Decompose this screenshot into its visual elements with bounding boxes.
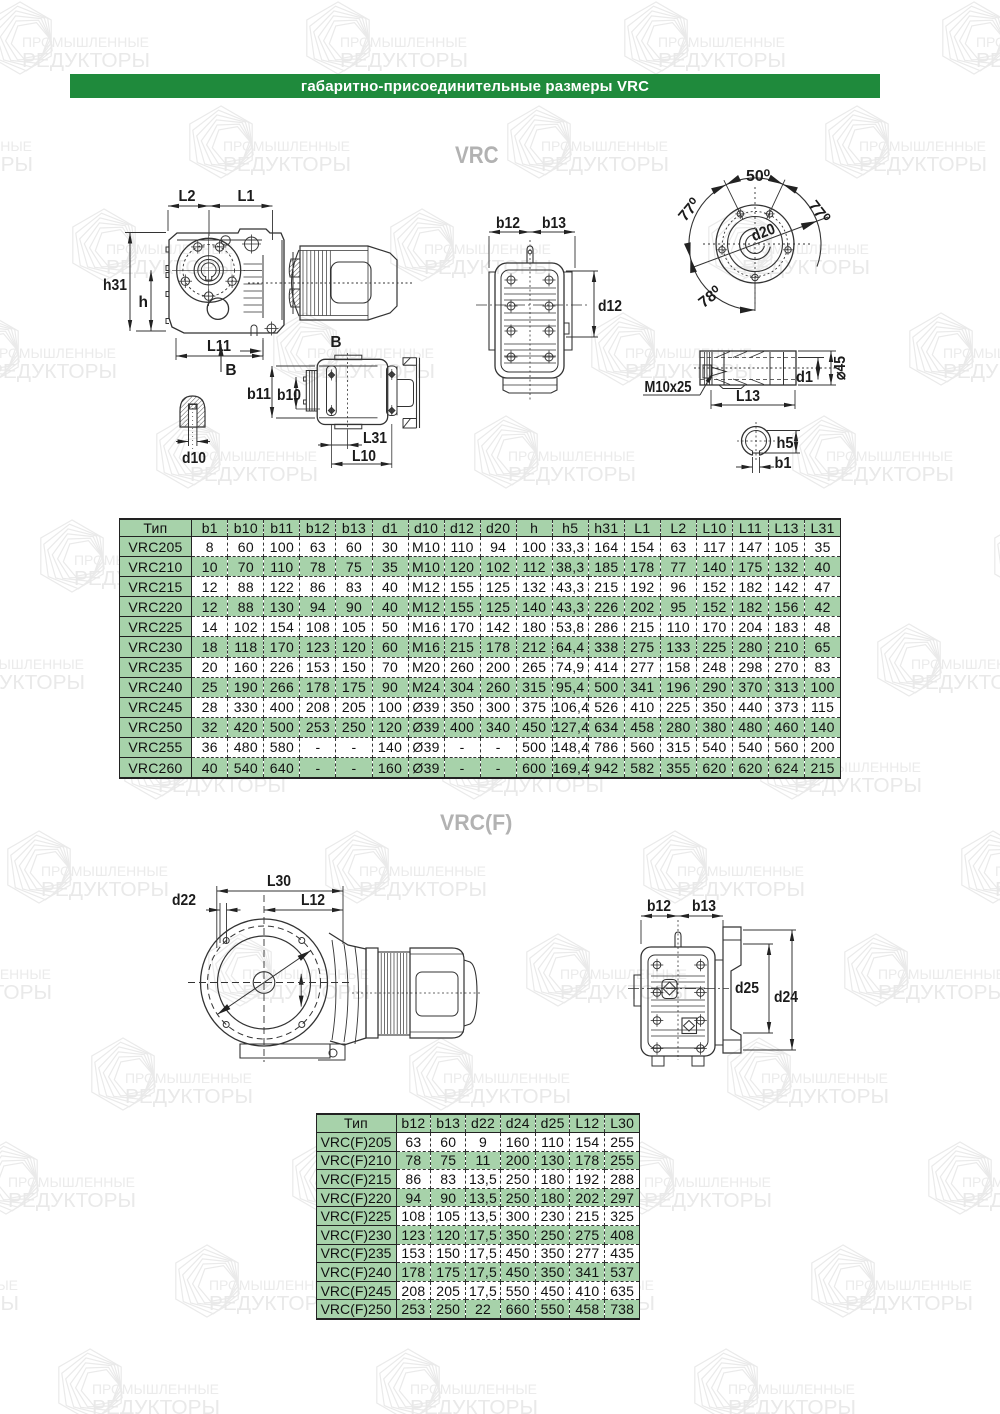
svg-text:d10: d10 <box>182 450 206 467</box>
svg-text:b1: b1 <box>775 455 792 472</box>
svg-text:B: B <box>330 334 341 351</box>
svg-text:L31: L31 <box>363 430 387 447</box>
svg-text:b13: b13 <box>542 215 566 232</box>
svg-text:h31: h31 <box>103 277 127 294</box>
svg-text:b13: b13 <box>692 898 716 915</box>
svg-text:L13: L13 <box>736 388 760 405</box>
svg-text:L1: L1 <box>238 188 255 205</box>
svg-text:⌀45: ⌀45 <box>832 356 849 380</box>
svg-text:b12: b12 <box>496 215 520 232</box>
svg-text:h: h <box>139 294 148 311</box>
svg-text:L2: L2 <box>179 188 196 205</box>
svg-text:L12: L12 <box>301 892 325 909</box>
svg-text:B: B <box>225 362 236 379</box>
svg-text:50⁰: 50⁰ <box>746 168 771 185</box>
svg-text:b10: b10 <box>277 387 301 404</box>
svg-text:d24: d24 <box>774 989 798 1006</box>
svg-text:b12: b12 <box>647 898 671 915</box>
svg-text:L10: L10 <box>352 448 376 465</box>
svg-text:b11: b11 <box>247 386 271 403</box>
svg-text:M10x25: M10x25 <box>645 379 692 396</box>
svg-text:d22: d22 <box>172 892 196 909</box>
svg-text:d25: d25 <box>735 980 759 997</box>
svg-text:77⁰: 77⁰ <box>675 195 704 225</box>
svg-text:78⁰: 78⁰ <box>696 283 726 312</box>
svg-text:L30: L30 <box>267 873 291 890</box>
svg-text:d1: d1 <box>796 369 813 386</box>
svg-text:h5: h5 <box>777 435 794 452</box>
svg-text:d12: d12 <box>598 298 622 315</box>
